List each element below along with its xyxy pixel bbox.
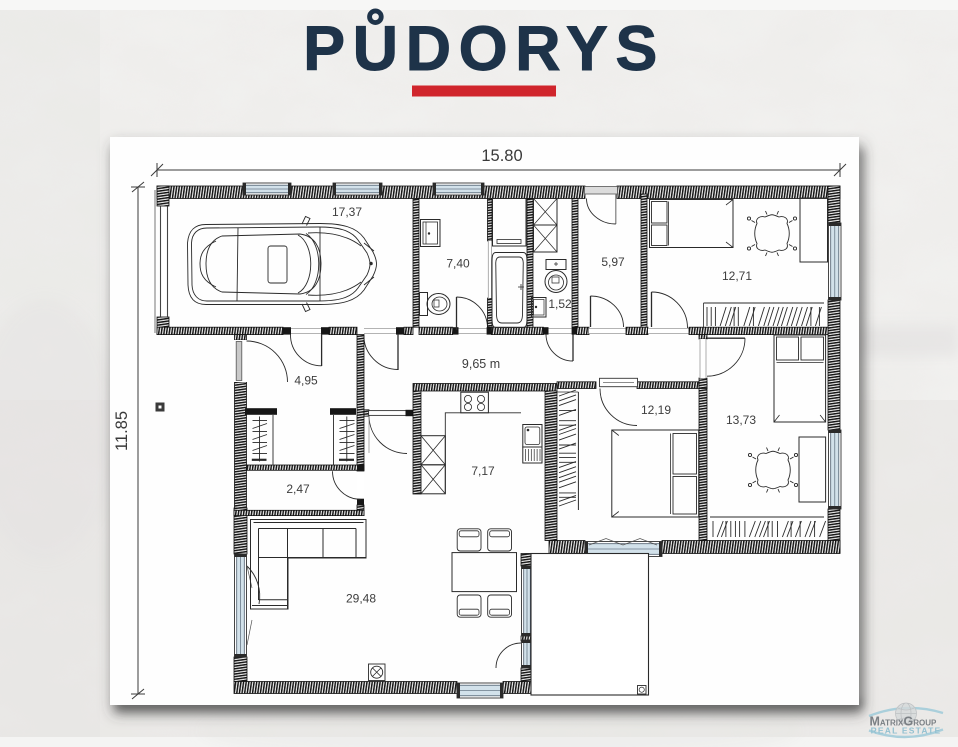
svg-text:12,71: 12,71 — [722, 269, 752, 283]
svg-text:7,17: 7,17 — [471, 464, 495, 478]
svg-text:12,19: 12,19 — [641, 403, 671, 417]
svg-text:REAL ESTATE: REAL ESTATE — [871, 726, 942, 736]
svg-text:15.80: 15.80 — [481, 147, 522, 165]
svg-text:PŮDORYS: PŮDORYS — [303, 9, 665, 84]
svg-text:4,95: 4,95 — [294, 374, 318, 388]
svg-text:9,65 m: 9,65 m — [462, 357, 500, 371]
svg-text:1,52: 1,52 — [548, 297, 572, 311]
svg-text:2,47: 2,47 — [286, 482, 310, 496]
svg-text:7,40: 7,40 — [446, 257, 470, 271]
svg-text:5,97: 5,97 — [601, 255, 625, 269]
svg-text:17,37: 17,37 — [332, 205, 362, 219]
svg-text:13,73: 13,73 — [726, 413, 756, 427]
svg-text:29,48: 29,48 — [346, 592, 376, 606]
svg-text:11.85: 11.85 — [113, 411, 131, 451]
